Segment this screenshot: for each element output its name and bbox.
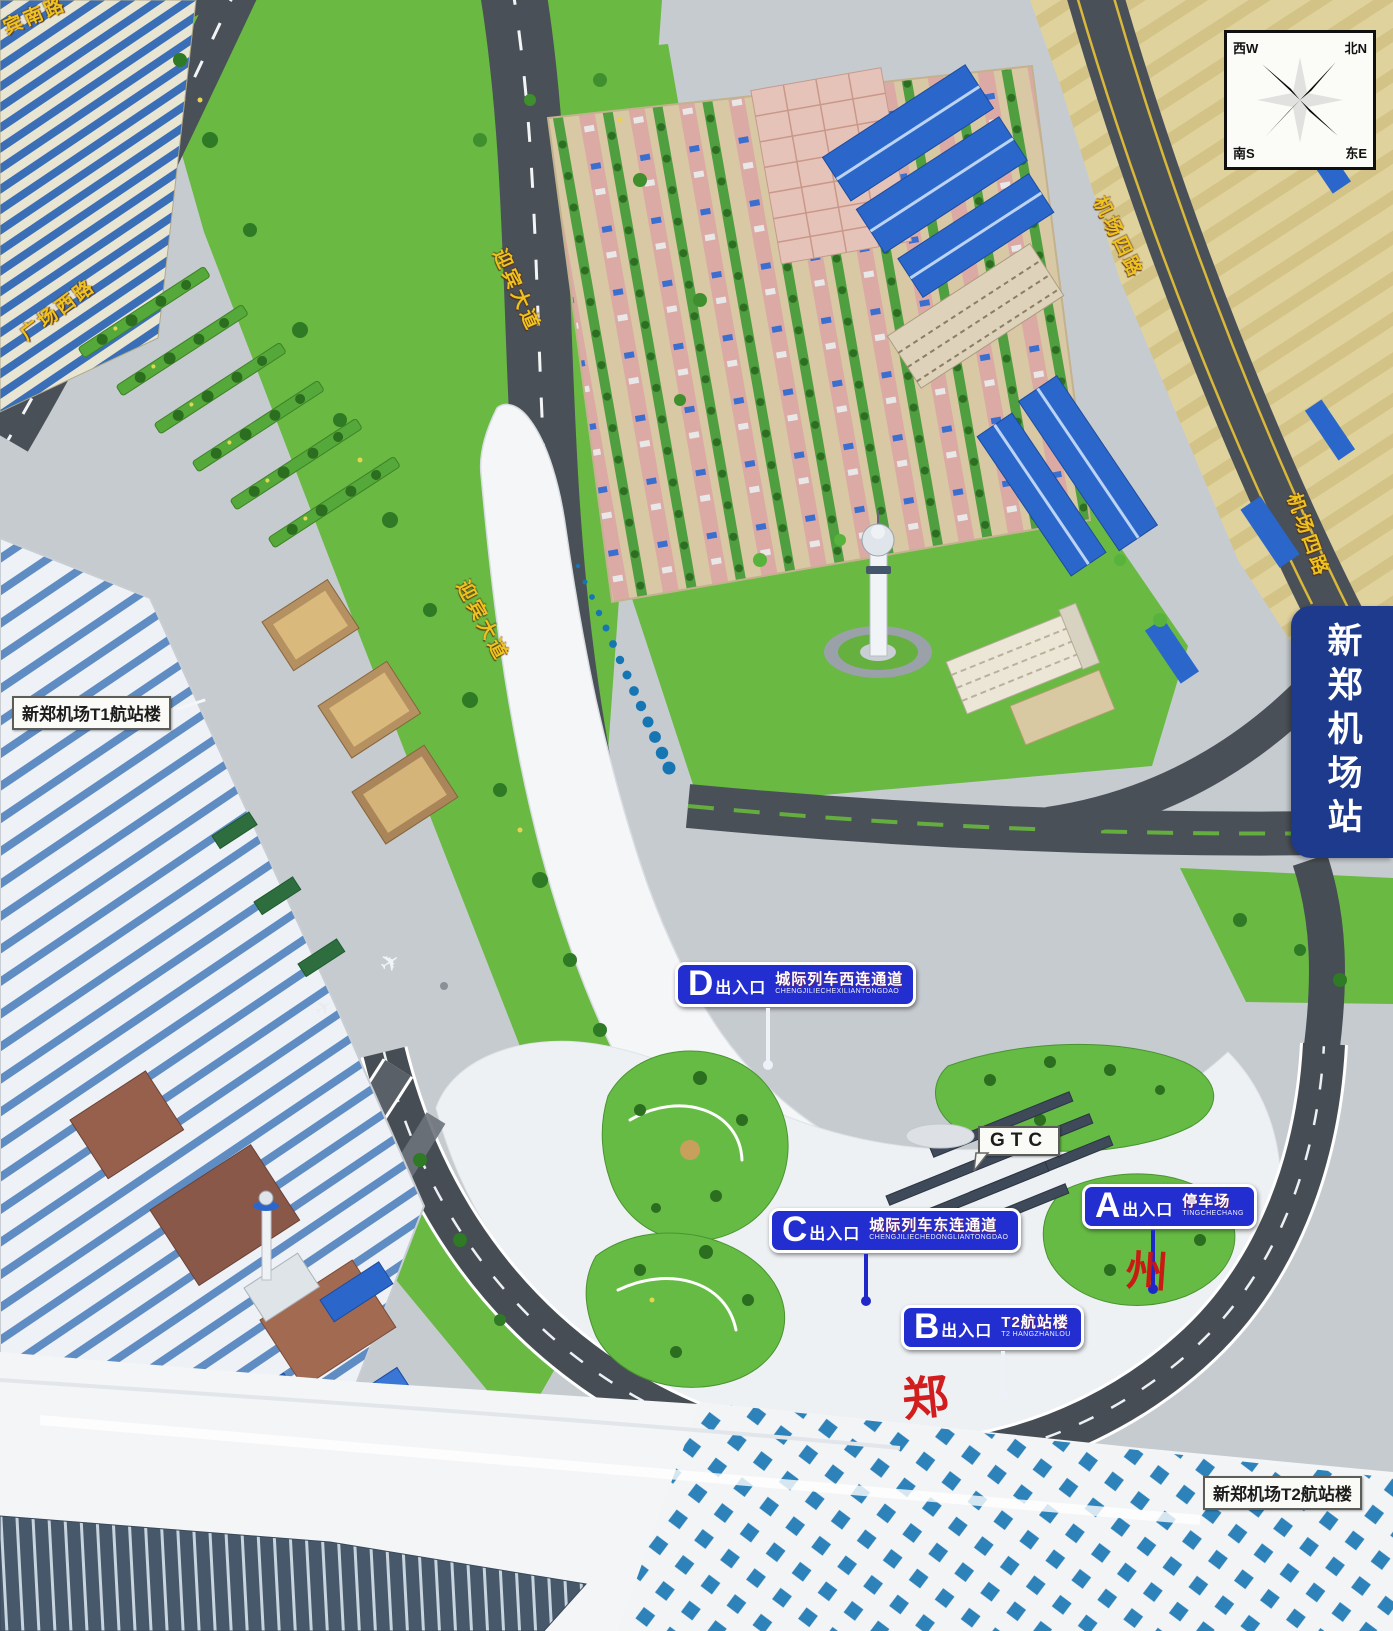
entrance-b-suffix: 出入口 — [941, 1317, 992, 1341]
entrance-a-label: A 出入口 停车场 TINGCHECHANG — [1082, 1184, 1257, 1229]
entrance-b-title: B 出入口 — [914, 1309, 992, 1344]
entrance-d-suffix: 出入口 — [715, 974, 766, 998]
t2-terminal-label: 新郑机场T2航站楼 — [1203, 1476, 1362, 1510]
map-illustration: ✈ ✈ — [0, 0, 1393, 1631]
entrance-c-letter: C — [782, 1212, 807, 1247]
entrance-d-name: 城际列车西连通道 — [775, 971, 903, 988]
entrance-b-name: T2航站楼 — [1001, 1314, 1070, 1331]
entrance-a-letter: A — [1095, 1188, 1120, 1223]
t1-terminal-label: 新郑机场T1航站楼 — [12, 696, 171, 730]
station-banner: 新郑机场站 — [1291, 606, 1393, 858]
red-mark-zheng: 郑 — [899, 1360, 952, 1430]
entrance-a-title: A 出入口 — [1095, 1188, 1173, 1223]
entrance-d-title: D 出入口 — [688, 966, 766, 1001]
entrance-c-destination: 城际列车东连通道 CHENGJILIECHEDONGLIANTONGDAO — [869, 1217, 1008, 1242]
entrance-b-letter: B — [914, 1309, 939, 1344]
compass-east-label: 东E — [1345, 143, 1367, 162]
red-mark-zhou: 州 — [1124, 1237, 1170, 1301]
entrance-d-label: D 出入口 城际列车西连通道 CHENGJILIECHEXILIANTONGDA… — [675, 962, 916, 1007]
entrance-c-suffix: 出入口 — [809, 1220, 860, 1244]
entrance-d-pinyin: CHENGJILIECHEXILIANTONGDAO — [775, 988, 903, 996]
entrance-a-pinyin: TINGCHECHANG — [1182, 1210, 1244, 1218]
station-banner-text: 新郑机场站 — [1317, 622, 1368, 842]
entrance-c-pinyin: CHENGJILIECHEDONGLIANTONGDAO — [869, 1234, 1008, 1242]
entrance-a-suffix: 出入口 — [1122, 1196, 1173, 1220]
entrance-d-letter: D — [688, 966, 713, 1001]
entrance-a-destination: 停车场 TINGCHECHANG — [1182, 1193, 1244, 1218]
entrance-c-name: 城际列车东连通道 — [869, 1217, 1008, 1234]
compass-rose: 西W 北N 南S 东E — [1224, 30, 1376, 170]
gtc-label-pointer — [972, 1151, 992, 1171]
gtc-label-text: GTC — [990, 1130, 1048, 1151]
gtc-label: GTC — [978, 1126, 1060, 1156]
compass-south-label: 南S — [1233, 143, 1255, 162]
entrance-c-title: C 出入口 — [782, 1212, 860, 1247]
compass-star-icon — [1254, 54, 1346, 146]
entrance-b-destination: T2航站楼 T2 HANGZHANLOU — [1001, 1314, 1070, 1339]
entrance-d-destination: 城际列车西连通道 CHENGJILIECHEXILIANTONGDAO — [775, 971, 903, 996]
compass-north-label: 北N — [1345, 38, 1367, 57]
entrance-b-pinyin: T2 HANGZHANLOU — [1001, 1331, 1070, 1339]
entrance-d-leader-line — [766, 1008, 770, 1062]
entrance-a-name: 停车场 — [1182, 1193, 1244, 1210]
entrance-c-label: C 出入口 城际列车东连通道 CHENGJILIECHEDONGLIANTONG… — [769, 1208, 1021, 1253]
airport-map-page: { "title": "新郑机场站", "compass": { "nw": "… — [0, 0, 1393, 1631]
entrance-c-leader-line — [864, 1254, 868, 1298]
entrance-b-leader-line — [1001, 1351, 1005, 1393]
entrance-b-label: B 出入口 T2航站楼 T2 HANGZHANLOU — [901, 1305, 1084, 1350]
